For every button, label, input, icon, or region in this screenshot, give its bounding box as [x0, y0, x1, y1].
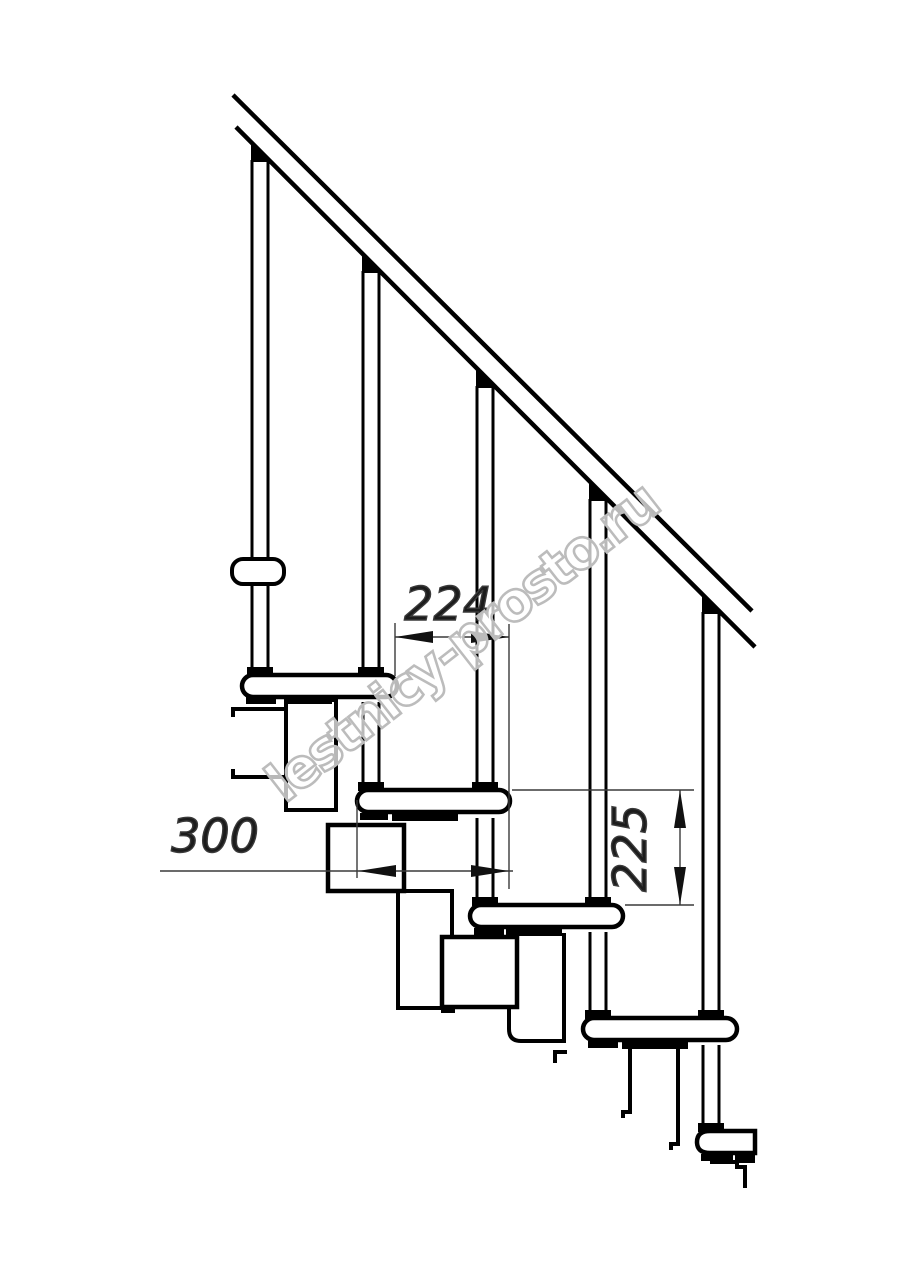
module-box-under-tread2: [328, 825, 404, 891]
wall-bracket: [232, 559, 284, 584]
tread-3: [470, 905, 623, 927]
tread-4: [583, 1018, 737, 1040]
module-joint-nub: [441, 1006, 455, 1013]
dimension-step-rise: 225: [512, 790, 694, 905]
baluster-5: [703, 612, 719, 1126]
drawing-sheet: 224 300 225 lestnicy-prosto.ru: [0, 0, 914, 1280]
stringer-break-lines: [555, 1047, 745, 1188]
baluster-1: [252, 160, 268, 670]
staircase-elevation-drawing: 224 300 225 lestnicy-prosto.ru: [0, 0, 914, 1280]
dimension-label-300: 300: [171, 809, 259, 863]
dimension-label-225: 225: [603, 804, 657, 892]
module-box-under-tread3: [442, 937, 517, 1007]
tread-2: [357, 790, 510, 812]
tread-5: [697, 1131, 755, 1153]
dimension-annotations: 224 300 225: [160, 577, 694, 905]
